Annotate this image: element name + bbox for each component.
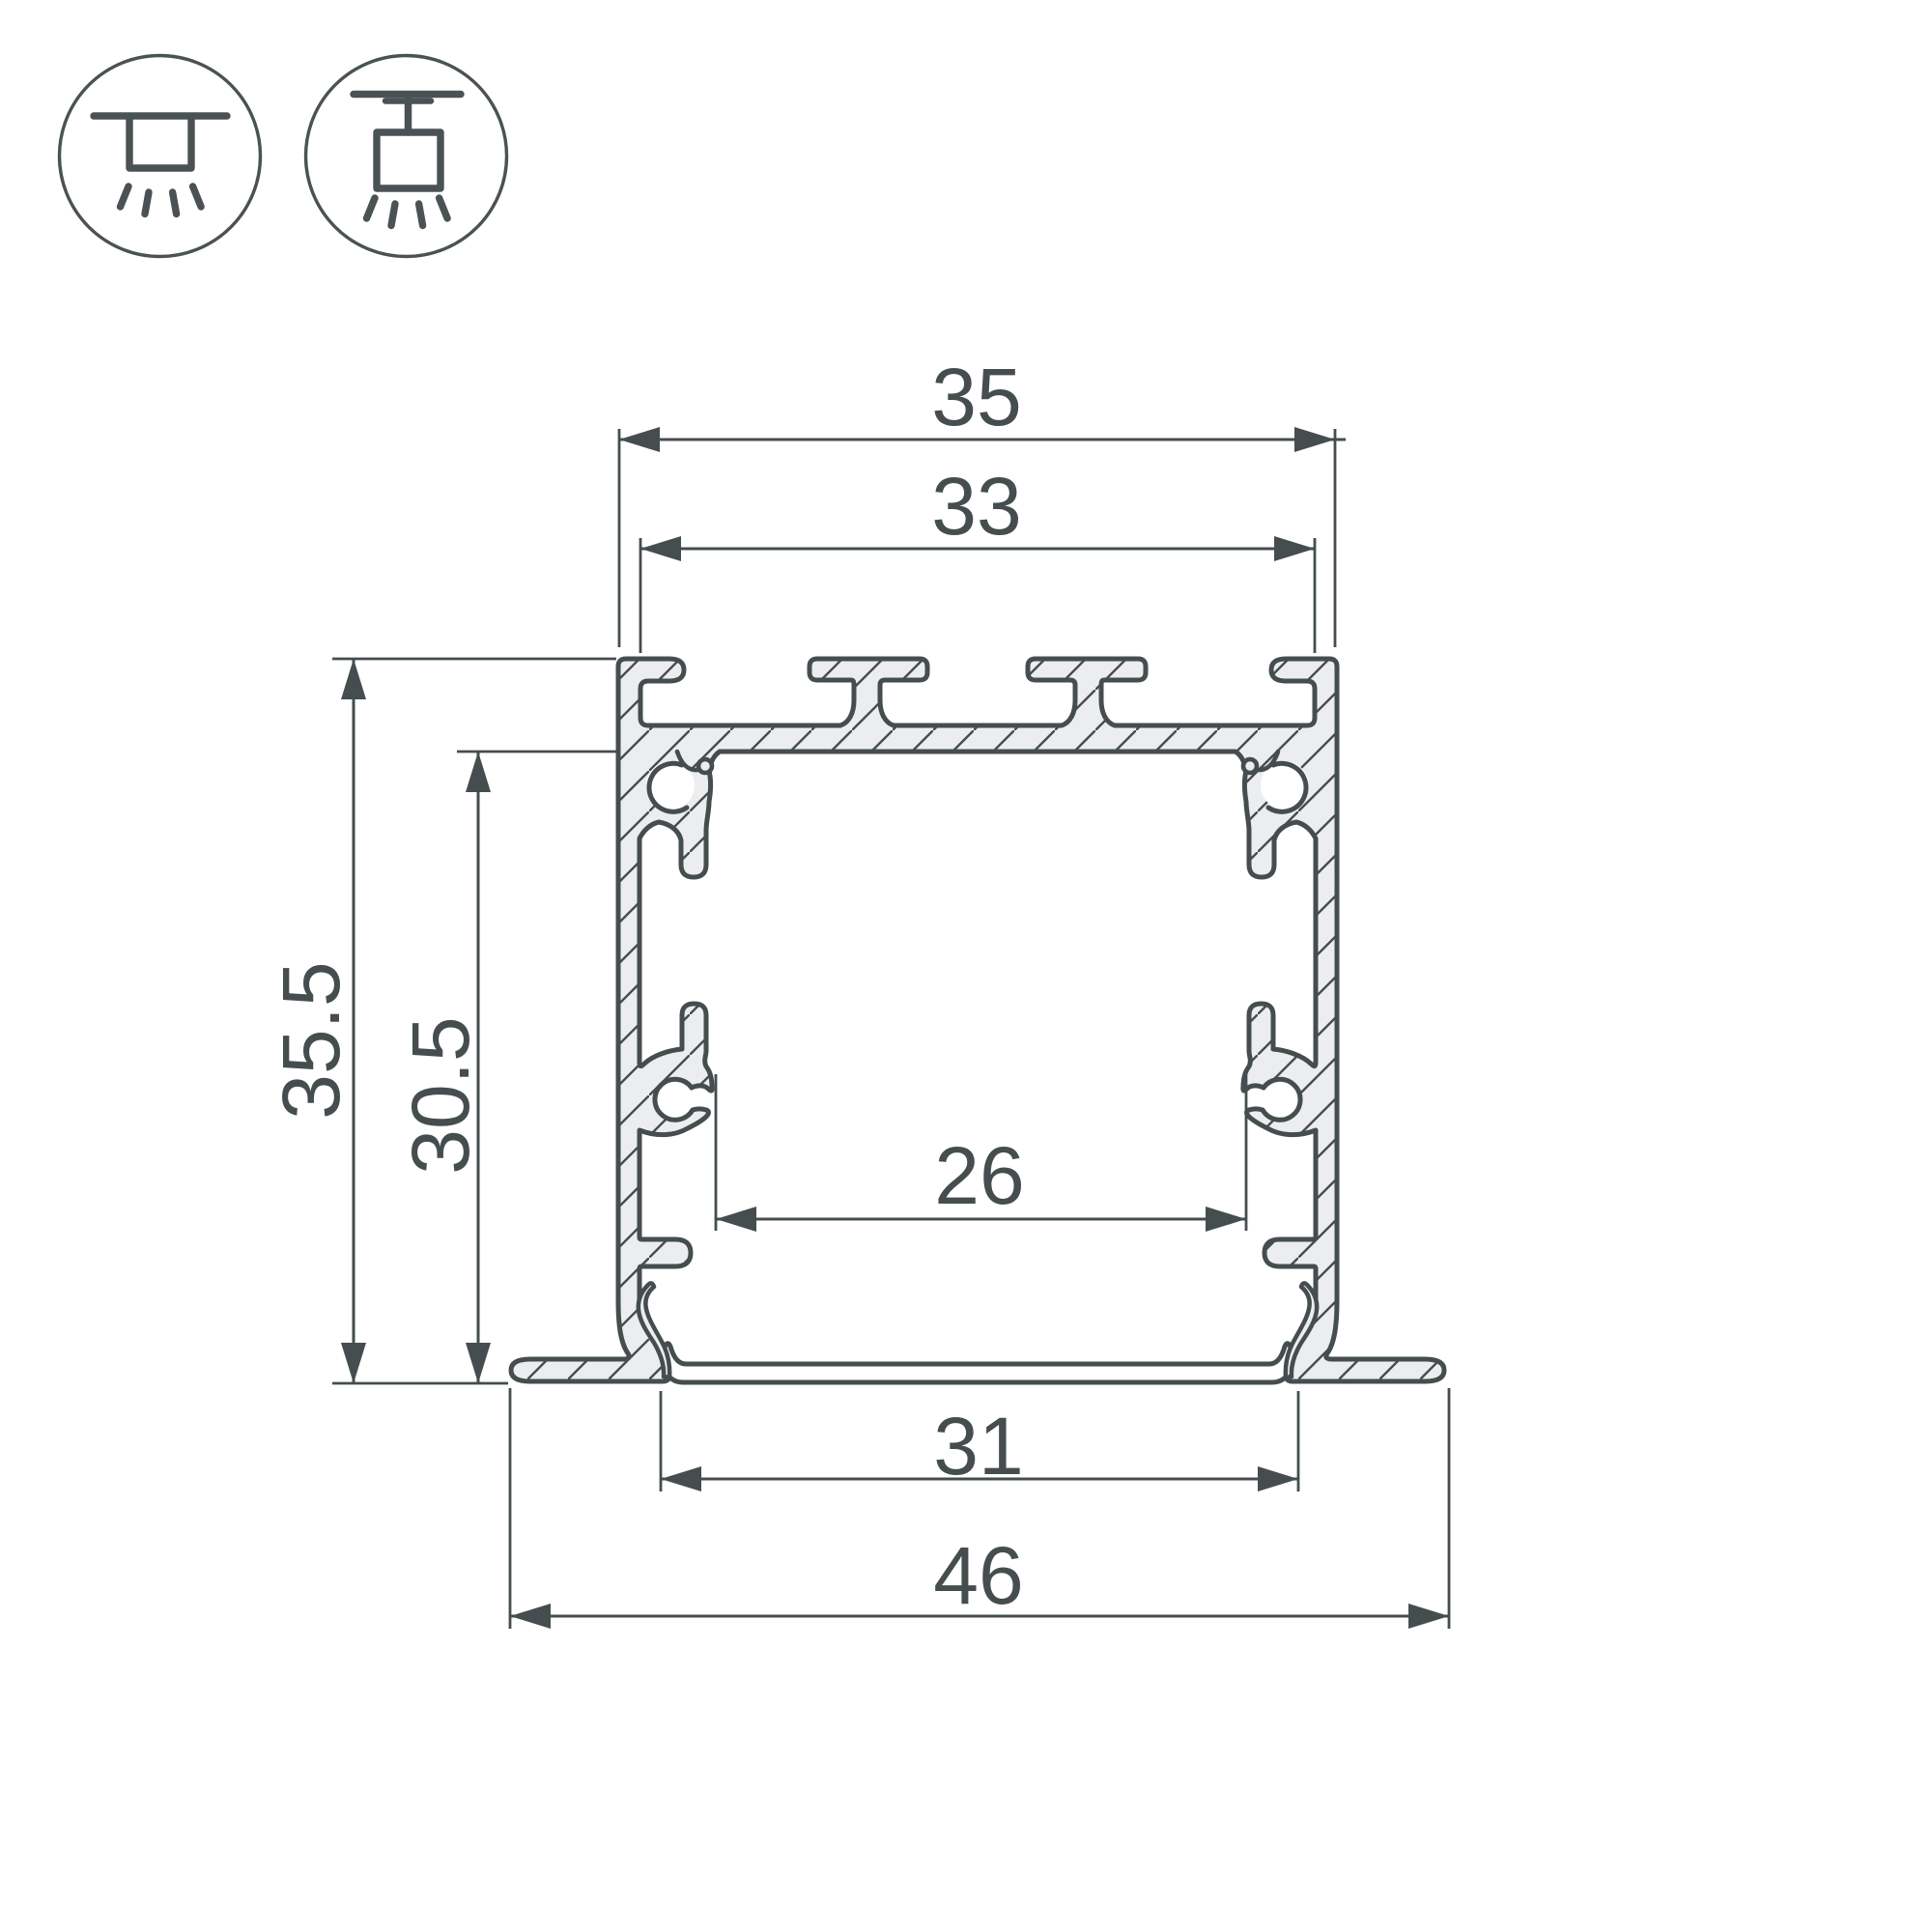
svg-text:35.5: 35.5 — [266, 961, 356, 1120]
svg-text:35: 35 — [931, 352, 1021, 442]
svg-text:46: 46 — [933, 1530, 1023, 1621]
svg-text:31: 31 — [933, 1401, 1023, 1492]
svg-text:33: 33 — [931, 461, 1021, 552]
svg-text:26: 26 — [934, 1130, 1024, 1221]
svg-text:30.5: 30.5 — [395, 1016, 486, 1175]
